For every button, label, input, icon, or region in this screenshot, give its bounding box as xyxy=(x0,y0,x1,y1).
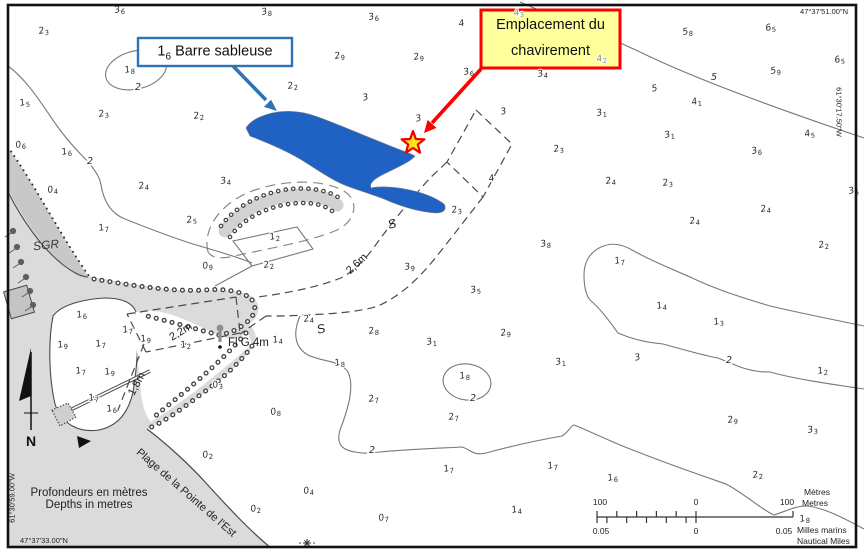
scale-unit-metres-en: Metres xyxy=(802,498,828,508)
depth-sounding: 14 xyxy=(656,300,668,313)
depth-sounding: 38 xyxy=(261,6,274,19)
depth-sounding: 31 xyxy=(555,356,567,369)
depth-sounding: 3 xyxy=(634,353,642,364)
coord-left-edge: 61°30'59.00"W xyxy=(8,473,17,523)
depth-sounding: 18 xyxy=(124,64,137,77)
depth-sounding: 31 xyxy=(596,107,608,120)
depth-sounding: 23 xyxy=(98,108,110,121)
detached-breakwater xyxy=(207,182,354,286)
depth-sounding: 5 xyxy=(651,84,659,95)
depth-sounding: 27 xyxy=(448,411,461,424)
sandbar-depth-num: 1 xyxy=(157,44,165,60)
depth-sounding: 18 xyxy=(334,357,347,370)
nautical-chart: 3623383645865363459652929181523222233541… xyxy=(0,0,864,556)
scale-unit-nm-en: Nautical Miles xyxy=(797,536,850,546)
depth-sounding: 3 xyxy=(500,107,508,118)
depth-sounding: 36 xyxy=(368,11,381,24)
scale-nm-left: 0.05 xyxy=(593,526,610,536)
depth-sounding: 12 xyxy=(817,365,829,378)
legend-en: Depths in metres xyxy=(18,499,160,511)
contour-label: 2 xyxy=(135,82,141,93)
depth-sounding: 06 xyxy=(15,139,28,152)
depth-sounding: 24 xyxy=(760,203,772,216)
capsize-arrow xyxy=(424,69,481,133)
depth-sounding: 18 xyxy=(459,370,472,383)
sgr-label: SGR xyxy=(32,237,59,254)
sandbar-arrow xyxy=(233,66,277,111)
depth-sounding: 59 xyxy=(770,65,782,78)
depth-sounding: 23 xyxy=(553,143,565,156)
depth-sounding: 65 xyxy=(765,22,777,35)
depth-sounding: 35 xyxy=(470,284,482,297)
depth-sounding: 02 xyxy=(202,449,214,462)
coord-right-edge: 61°30'17.50"W xyxy=(835,87,844,137)
depth-sounding: 22 xyxy=(818,239,830,252)
depth-sounding: 29 xyxy=(500,327,512,340)
depth-sounding: 14 xyxy=(511,504,523,517)
depth-sounding: 23 xyxy=(662,177,674,190)
depth-sounding: 41 xyxy=(691,96,703,109)
depth-sounding: 65 xyxy=(834,54,846,67)
contour-label: 2 xyxy=(470,393,476,404)
depth-sounding: 38 xyxy=(540,238,553,251)
coord-top-right: 47°37'51.00"N xyxy=(785,7,848,16)
legend-fr: Profondeurs en mètres xyxy=(18,487,160,499)
depth-sounding: 22 xyxy=(287,80,299,93)
depth-sounding: 31 xyxy=(664,129,676,142)
depth-sounding: 24 xyxy=(689,215,701,228)
capsize-star-icon xyxy=(402,131,425,153)
depth-sounding: 29 xyxy=(413,51,425,64)
depth-sounding: 14 xyxy=(272,334,284,347)
depth-sounding: 22 xyxy=(193,110,205,123)
depth-sounding: 24 xyxy=(605,175,617,188)
coord-bottom-left: 47°37'33.00"N xyxy=(20,536,68,545)
depth-sounding: 16 xyxy=(61,146,74,159)
contour-label: 2 xyxy=(726,355,732,366)
north-label: N xyxy=(26,433,36,449)
depth-sounding: 34 xyxy=(537,68,549,81)
contour-label: 2 xyxy=(87,156,93,167)
depth-sounding: 34 xyxy=(220,175,232,188)
depth-sounding: 08 xyxy=(270,406,283,419)
depth-sounding: 04 xyxy=(303,485,315,498)
depth-sounding: 35 xyxy=(848,185,860,198)
depth-sounding: 17 xyxy=(547,460,560,473)
depth-sounding: 45 xyxy=(804,128,816,141)
depth-sounding: 3 xyxy=(415,114,423,125)
depth-sounding: 27 xyxy=(368,393,381,406)
scale-m-right: 100 xyxy=(780,497,794,507)
depth-sounding: 36 xyxy=(751,145,764,158)
depth-sounding: 13 xyxy=(713,316,725,329)
depth-sounding: 17 xyxy=(443,463,456,476)
depth-sounding: 16 xyxy=(607,472,620,485)
depth-sounding: 33 xyxy=(807,424,819,437)
depth-sounding: 04 xyxy=(47,184,59,197)
depth-sounding: 39 xyxy=(404,261,416,274)
depth-sounding: 24 xyxy=(138,180,150,193)
sandbar-name: Barre sableuse xyxy=(171,44,273,60)
depth-sounding: 58 xyxy=(682,26,695,39)
contour-label: 5 xyxy=(711,72,717,83)
depth-sounding: 29 xyxy=(727,414,739,427)
depth-sounding: 29 xyxy=(334,50,346,63)
depth-sounding: 4 xyxy=(458,19,466,30)
scale-m-left: 100 xyxy=(593,497,607,507)
depth-sounding: 17 xyxy=(98,222,111,235)
scale-nm-right: 0.05 xyxy=(776,526,793,536)
depth-sounding: 02 xyxy=(250,503,262,516)
depth-sounding: 3 xyxy=(362,93,370,104)
depth-sounding: 25 xyxy=(186,214,198,227)
depth-sounding: 22 xyxy=(752,469,764,482)
depth-sounding: 12 xyxy=(269,231,281,244)
depth-sounding: 23 xyxy=(38,25,50,38)
depth-sounding: 23 xyxy=(451,204,463,217)
chart-canvas: 3623383645865363459652929181523222233541… xyxy=(0,0,864,556)
scale-bar xyxy=(597,511,793,523)
depth-sounding: 28 xyxy=(368,325,381,338)
depth-sounding: 31 xyxy=(426,336,438,349)
depth-sounding: 17 xyxy=(614,255,627,268)
scale-m-zero: 0 xyxy=(694,497,699,507)
scale-unit-nm-fr: Milles marins xyxy=(797,525,847,535)
capsize-label-line2: chavirement xyxy=(481,38,620,64)
light-label: Fl G 4m xyxy=(228,337,269,349)
depth-unit-legend: Profondeurs en mètres Depths in metres xyxy=(18,487,160,511)
capsize-callout-label: Emplacement du chavirement xyxy=(481,12,620,64)
contour-label: 2 xyxy=(369,445,375,456)
depth-sounding: 07 xyxy=(378,512,391,525)
depth-sounding: 15 xyxy=(19,97,31,110)
scale-unit-metres-fr: Mètres xyxy=(804,487,830,497)
capsize-label-line1: Emplacement du xyxy=(481,12,620,38)
depth-sounding: 09 xyxy=(202,260,214,273)
sandbar-callout-label: 16 Barre sableuse xyxy=(157,44,272,63)
scale-nm-zero: 0 xyxy=(694,526,699,536)
